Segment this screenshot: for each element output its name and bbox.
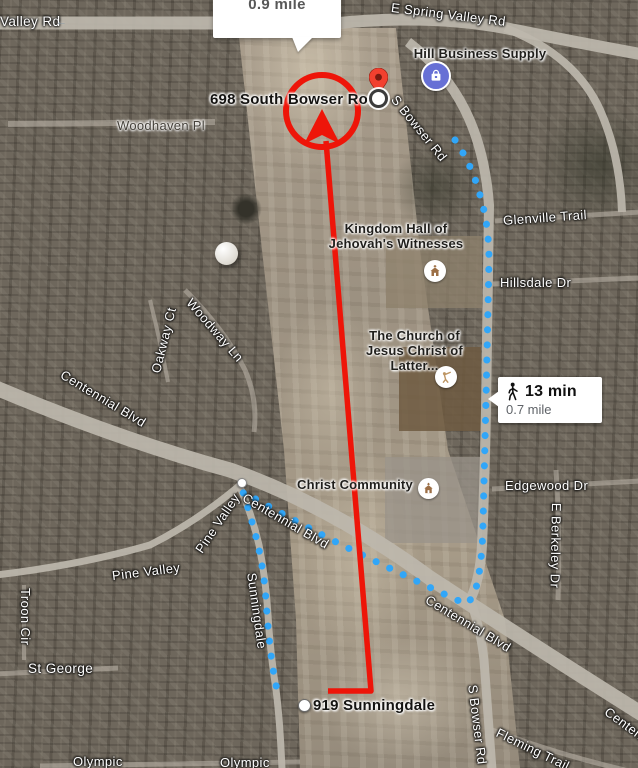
angel-moroni-icon-lds[interactable]: [435, 366, 457, 388]
route-turn-dot: [237, 478, 247, 488]
callout-tail: [292, 37, 313, 52]
destination-location-marker[interactable]: [369, 89, 388, 108]
street-label-woodhaven-pl: Woodhaven Pl: [117, 119, 205, 134]
street-label-olympic-2: Olympic: [220, 756, 270, 768]
poi-label-christ-community[interactable]: Christ Community: [297, 478, 413, 493]
church-icon-kingdom-hall[interactable]: [424, 260, 446, 282]
poi-label-hill-business-supply[interactable]: Hill Business Supply: [410, 47, 550, 62]
street-label-e-berkeley-dr: E Berkeley Dr: [547, 503, 563, 589]
church-icon-christ-community[interactable]: [418, 478, 439, 499]
origin-location-marker[interactable]: [298, 699, 311, 712]
street-label-olympic-1: Olympic: [73, 755, 123, 768]
badge-duration: 13 min: [525, 383, 577, 401]
badge-tail: [488, 391, 499, 407]
red-annotation: [286, 75, 371, 691]
poi-label-kingdom-hall[interactable]: Kingdom Hall of Jehovah's Witnesses: [327, 222, 465, 252]
badge-distance: 0.7 mile: [506, 402, 594, 417]
origin-address-label[interactable]: 919 Sunningdale: [313, 697, 435, 714]
street-label-st-george: St George: [28, 661, 93, 677]
route-callout[interactable]: 0.9 mile: [213, 0, 341, 38]
shopping-bag-icon[interactable]: [421, 61, 451, 91]
poi-label-lds-church[interactable]: The Church of Jesus Christ of Latter...: [352, 329, 477, 374]
destination-address-label[interactable]: 698 South Bowser Road: [210, 91, 386, 108]
one-way-arrow-icon: ←: [56, 16, 67, 28]
street-label-troon-cir: Troon Cir: [17, 588, 32, 645]
walking-icon: [506, 382, 519, 401]
street-label-edgewood-dr: Edgewood Dr: [505, 479, 588, 494]
street-label-hillsdale-dr: Hillsdale Dr: [500, 276, 571, 291]
callout-distance: 0.9 mile: [248, 0, 305, 13]
map-canvas[interactable]: Valley Rd ← ← E Spring Valley Rd S Bowse…: [0, 0, 638, 768]
route-time-badge[interactable]: 13 min 0.7 mile: [498, 377, 602, 423]
street-label-valley-rd: Valley Rd: [0, 14, 60, 30]
